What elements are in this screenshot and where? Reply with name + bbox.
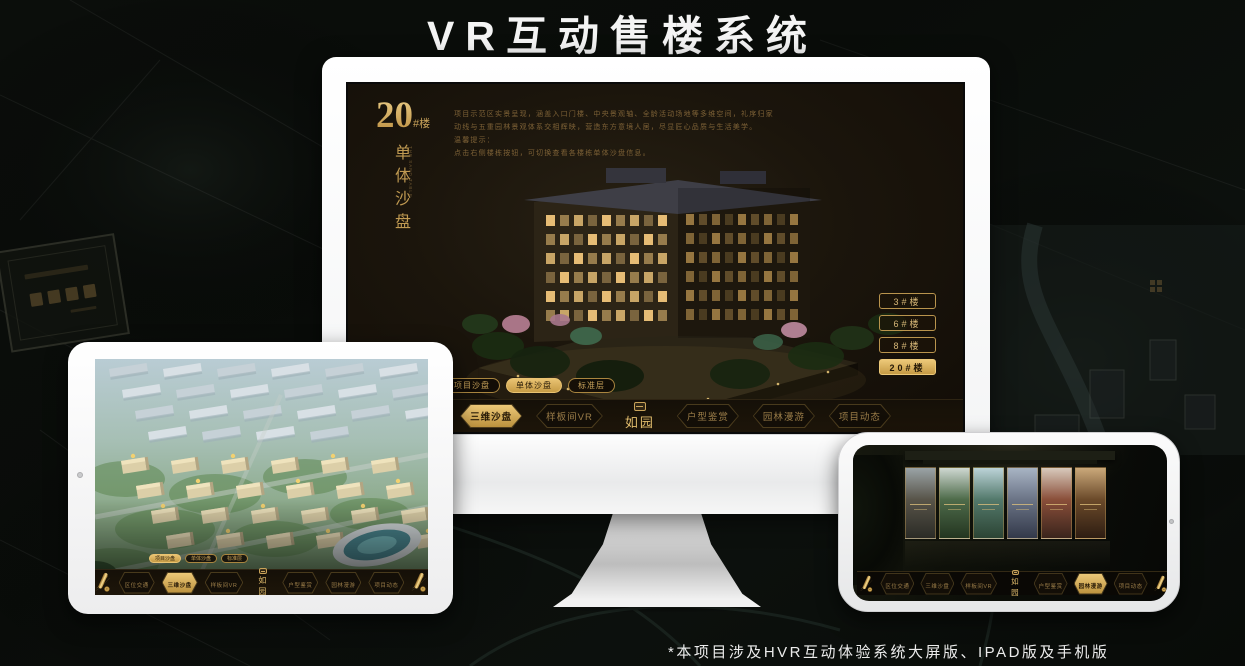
description-block: 项目示范区实景呈现，涵盖入口门楼、中央景观轴、全龄活动场地等多维空间，礼序归家动… <box>454 108 866 160</box>
description-line: 温馨提示： <box>454 134 866 147</box>
nav-item[interactable]: 项目动态 <box>829 404 891 428</box>
nav-item-label: 三维沙盘 <box>168 583 192 589</box>
nav-item-label: 项目动态 <box>1119 584 1143 590</box>
page-title: VR互动售楼系统 <box>0 2 1245 62</box>
description-line: 点击右侧楼栋按钮，可切换查看各楼栋单体沙盘信息。 <box>454 147 866 160</box>
nav-item-label: 户型鉴赏 <box>288 583 312 589</box>
nav-item-label: 样板间VR <box>211 583 238 589</box>
nav-item[interactable]: 样板间VR <box>205 572 244 594</box>
brand-logo: 如园 <box>625 402 655 431</box>
scroll-icon[interactable] <box>1154 575 1167 593</box>
nav-item[interactable]: 园林漫游 <box>1074 573 1108 595</box>
sub-tab-group: 项目沙盘单体沙盘标准层 <box>149 554 248 563</box>
brand-logo: 如园 <box>1011 570 1020 598</box>
scroll-icon[interactable] <box>95 572 112 593</box>
main-nav-bar: 区位交通三维沙盘样板间VR如园户型鉴赏园林漫游项目动态 <box>857 571 1167 595</box>
floor-reflection-decoration <box>905 541 1110 567</box>
nav-item-label: 园林漫游 <box>331 583 355 589</box>
brand-logo: 如园 <box>258 568 267 595</box>
gallery-card-entrance-pavilion[interactable] <box>905 467 936 539</box>
nav-item[interactable]: 三维沙盘 <box>162 572 198 594</box>
nav-item[interactable]: 三维沙盘 <box>460 404 522 428</box>
award-plaque-decoration <box>0 234 129 351</box>
nav-item[interactable]: 样板间VR <box>960 573 997 595</box>
nav-item[interactable]: 园林漫游 <box>325 572 361 594</box>
sub-tab[interactable]: 标准层 <box>221 554 248 563</box>
brand-seal-icon <box>1012 570 1019 575</box>
nav-item[interactable]: 三维沙盘 <box>920 573 954 595</box>
card-caption-decoration <box>1050 509 1063 510</box>
aerial-photo-decoration <box>980 225 1245 455</box>
brand-logo-text: 如园 <box>1011 576 1020 598</box>
scroll-icon[interactable] <box>411 572 428 593</box>
description-line: 动线与五重园林景观体系交相辉映，营造东方意境人居，尽显匠心品质与生活美学。 <box>454 121 866 134</box>
tablet-screen: 项目沙盘单体沙盘标准层 区位交通三维沙盘样板间VR如园户型鉴赏园林漫游项目动态 <box>95 359 428 595</box>
brand-logo-text: 如园 <box>258 575 267 595</box>
brand-seal-icon <box>259 568 267 574</box>
description-line: 项目示范区实景呈现，涵盖入口门楼、中央景观轴、全龄活动场地等多维空间，礼序归家 <box>454 108 866 121</box>
nav-item[interactable]: 样板间VR <box>536 404 603 428</box>
gallery-card-aerial-view[interactable] <box>973 467 1004 539</box>
card-caption-decoration <box>982 509 995 510</box>
card-caption-decoration <box>910 504 930 505</box>
card-caption-decoration <box>944 504 964 505</box>
sub-tab[interactable]: 单体沙盘 <box>185 554 217 563</box>
main-nav-bar: 区位交通三维沙盘样板间VR如园户型鉴赏园林漫游项目动态 <box>95 569 428 595</box>
card-caption-decoration <box>978 504 998 505</box>
block-title: 20#楼 <box>376 94 430 137</box>
floor-button[interactable]: 8#楼 <box>879 337 936 353</box>
nav-item-label: 区位交通 <box>125 583 149 589</box>
gallery-card-autumn-courtyard[interactable] <box>1041 467 1072 539</box>
nav-item[interactable]: 区位交通 <box>119 572 155 594</box>
scroll-icon[interactable] <box>901 382 951 432</box>
card-caption-decoration <box>1016 509 1029 510</box>
card-caption-decoration <box>1080 504 1100 505</box>
nav-item-label: 样板间VR <box>965 584 992 590</box>
sub-tab-group: 项目沙盘单体沙盘标准层 <box>444 378 615 393</box>
tablet-camera-icon <box>77 472 83 478</box>
floor-button[interactable]: 3#楼 <box>879 293 936 309</box>
gallery-card-row <box>905 467 1106 539</box>
building-number: 20 <box>376 95 413 136</box>
brand-logo-text: 如园 <box>625 412 655 431</box>
nav-item-label: 户型鉴赏 <box>687 412 729 423</box>
gallery-card-interior-shelf[interactable] <box>1075 467 1106 539</box>
building-number-suffix: #楼 <box>413 118 430 130</box>
card-caption-decoration <box>1084 509 1097 510</box>
floor-button[interactable]: 20#楼 <box>879 359 936 375</box>
card-caption-decoration <box>1046 504 1066 505</box>
nav-item-label: 园林漫游 <box>1079 584 1103 590</box>
card-caption-decoration <box>914 509 927 510</box>
brand-seal-icon <box>634 402 646 411</box>
nav-item[interactable]: 园林漫游 <box>753 404 815 428</box>
floor-button-group: 3#楼6#楼8#楼20#楼 <box>879 293 936 375</box>
nav-item[interactable]: 户型鉴赏 <box>282 572 318 594</box>
nav-item[interactable]: 户型鉴赏 <box>677 404 739 428</box>
scroll-icon[interactable] <box>860 575 874 593</box>
nav-item[interactable]: 户型鉴赏 <box>1034 573 1068 595</box>
nav-item[interactable]: 项目动态 <box>1114 573 1148 595</box>
nav-item-label: 三维沙盘 <box>470 412 512 423</box>
footnote: *本项目涉及HVR互动体验系统大屏版、IPAD版及手机版 <box>668 641 1109 662</box>
card-caption-decoration <box>948 509 961 510</box>
nav-item[interactable]: 区位交通 <box>880 573 914 595</box>
nav-item[interactable]: 项目动态 <box>368 572 404 594</box>
card-caption-decoration <box>1012 504 1032 505</box>
nav-item-label: 园林漫游 <box>763 412 805 423</box>
nav-item-label: 三维沙盘 <box>925 584 949 590</box>
floor-button[interactable]: 6#楼 <box>879 315 936 331</box>
nav-item-label: 区位交通 <box>885 584 909 590</box>
roof-beam-decoration <box>905 451 1115 460</box>
sub-tab[interactable]: 标准层 <box>568 378 615 393</box>
nav-item-label: 样板间VR <box>546 412 593 423</box>
nav-item-label: 项目动态 <box>839 412 881 423</box>
nav-item-label: 户型鉴赏 <box>1039 584 1063 590</box>
sub-tab[interactable]: 项目沙盘 <box>149 554 181 563</box>
gallery-card-building-facade[interactable] <box>1007 467 1038 539</box>
phone-device: 区位交通三维沙盘样板间VR如园户型鉴赏园林漫游项目动态 <box>838 432 1180 612</box>
block-subtitle-en: THE SAND TABLE <box>408 146 413 198</box>
page: VR互动售楼系统 20#楼 单体沙盘 THE SAND TABLE 项目示范区实… <box>0 0 1245 666</box>
aerial-sandtable-render <box>95 359 428 595</box>
sub-tab[interactable]: 单体沙盘 <box>506 378 562 393</box>
roof-beam-decoration <box>923 460 1097 464</box>
phone-camera-icon <box>1169 519 1174 524</box>
foliage-decoration <box>853 455 903 585</box>
gallery-card-garden-bamboo[interactable] <box>939 467 970 539</box>
nav-item-label: 项目动态 <box>374 583 398 589</box>
tablet-device: 项目沙盘单体沙盘标准层 区位交通三维沙盘样板间VR如园户型鉴赏园林漫游项目动态 <box>68 342 453 614</box>
phone-screen: 区位交通三维沙盘样板间VR如园户型鉴赏园林漫游项目动态 <box>853 445 1167 601</box>
